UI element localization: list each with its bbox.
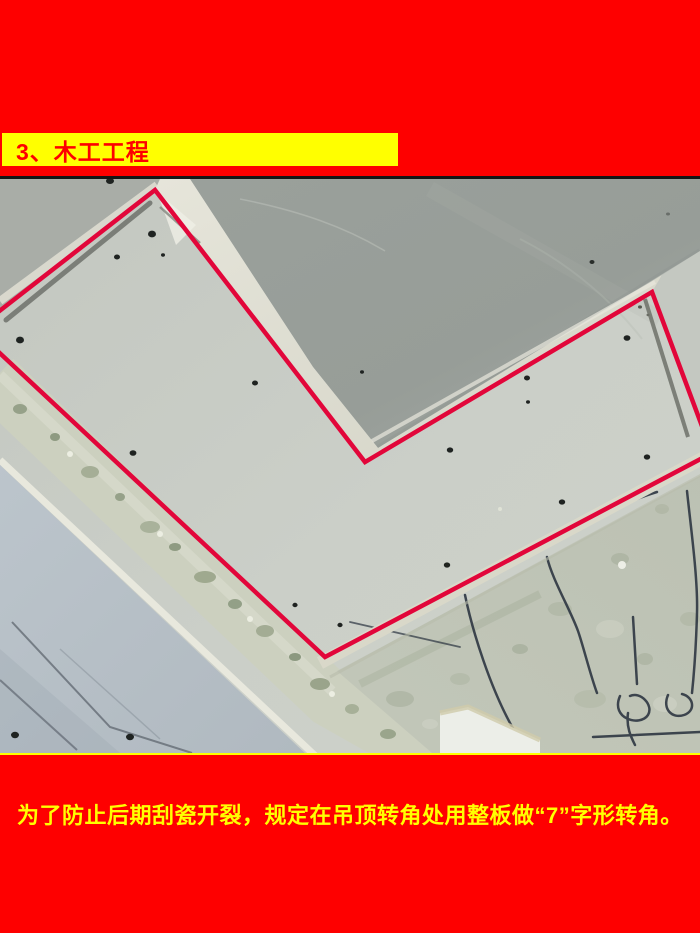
- section-title-text: 3、木工工程: [2, 133, 150, 167]
- section-title-banner: 3、木工工程: [2, 133, 398, 166]
- slide-page: { "colors": { "background_red": "#fe0000…: [0, 0, 700, 933]
- caption-text: 为了防止后期刮瓷开裂，规定在吊顶转角处用整板做“7”字形转角。: [17, 798, 689, 830]
- site-photo-frame: [0, 176, 700, 755]
- ceiling-photo: [0, 179, 700, 753]
